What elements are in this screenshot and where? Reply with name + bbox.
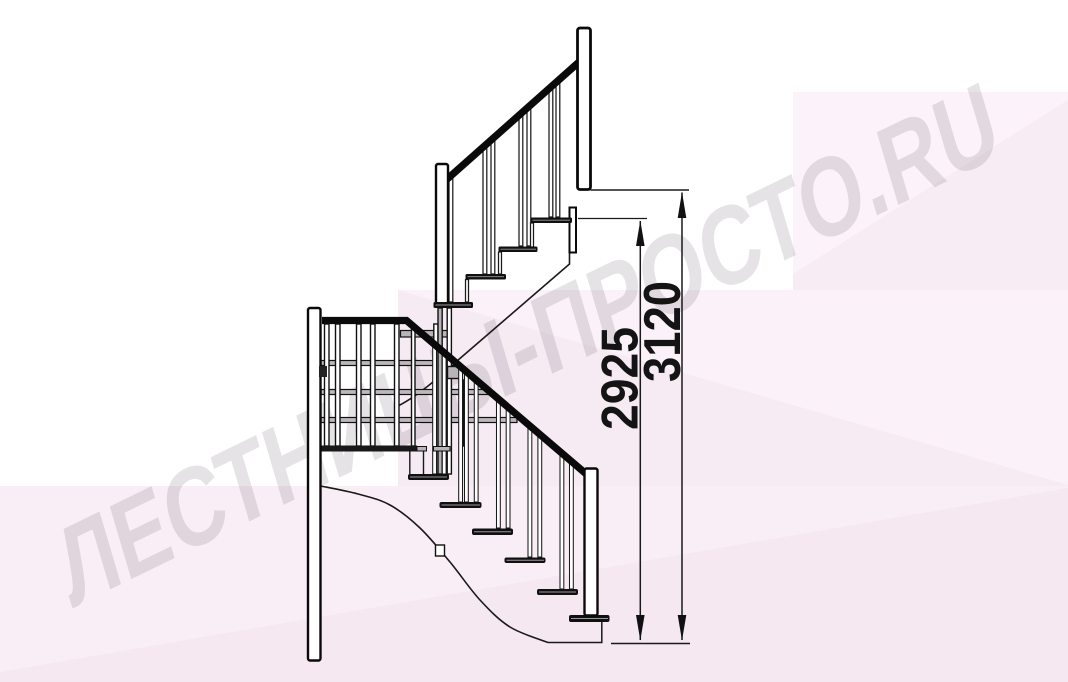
svg-text:3120: 3120	[634, 281, 692, 382]
